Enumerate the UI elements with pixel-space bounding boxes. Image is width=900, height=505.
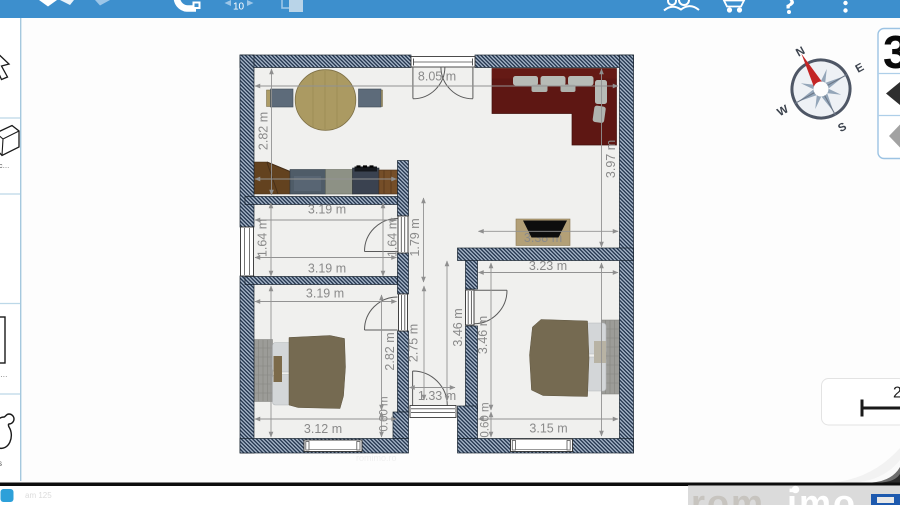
svg-text:3.46 m: 3.46 m [476, 316, 490, 354]
svg-text:3.15 m: 3.15 m [529, 422, 567, 436]
svg-text:10: 10 [233, 2, 245, 13]
svg-text:3: 3 [883, 26, 900, 78]
svg-text:1.33 m: 1.33 m [418, 389, 456, 403]
svg-text:3.19 m: 3.19 m [308, 262, 346, 276]
svg-text:romimo.ro: romimo.ro [356, 453, 397, 463]
svg-text:s: s [0, 459, 2, 468]
svg-text:2: 2 [893, 385, 900, 402]
svg-text:3.12 m: 3.12 m [304, 422, 342, 436]
svg-text:3.19 m: 3.19 m [306, 287, 344, 301]
svg-text:3.19 m: 3.19 m [308, 203, 346, 217]
svg-text:rom: rom [691, 482, 765, 505]
svg-text:1.64 m: 1.64 m [256, 219, 270, 257]
svg-text:c…: c… [0, 163, 10, 170]
svg-text:t…: t… [0, 370, 8, 379]
svg-text:0.60 m: 0.60 m [480, 402, 492, 437]
svg-text:8.05 m: 8.05 m [418, 70, 456, 84]
svg-text:2.82 m: 2.82 m [383, 332, 397, 370]
svg-text:0.60 m: 0.60 m [379, 396, 391, 431]
svg-text:1.64 m: 1.64 m [386, 219, 400, 257]
svg-text:2.82 m: 2.82 m [257, 112, 271, 150]
svg-text:am 125: am 125 [25, 491, 52, 500]
svg-text:3.46 m: 3.46 m [451, 308, 465, 346]
svg-text:imo: imo [787, 482, 857, 505]
svg-text:1.79 m: 1.79 m [408, 218, 422, 256]
svg-text:2.75 m: 2.75 m [407, 324, 421, 362]
svg-text:3.97 m: 3.97 m [604, 140, 618, 178]
svg-text:3.23 m: 3.23 m [529, 259, 567, 273]
